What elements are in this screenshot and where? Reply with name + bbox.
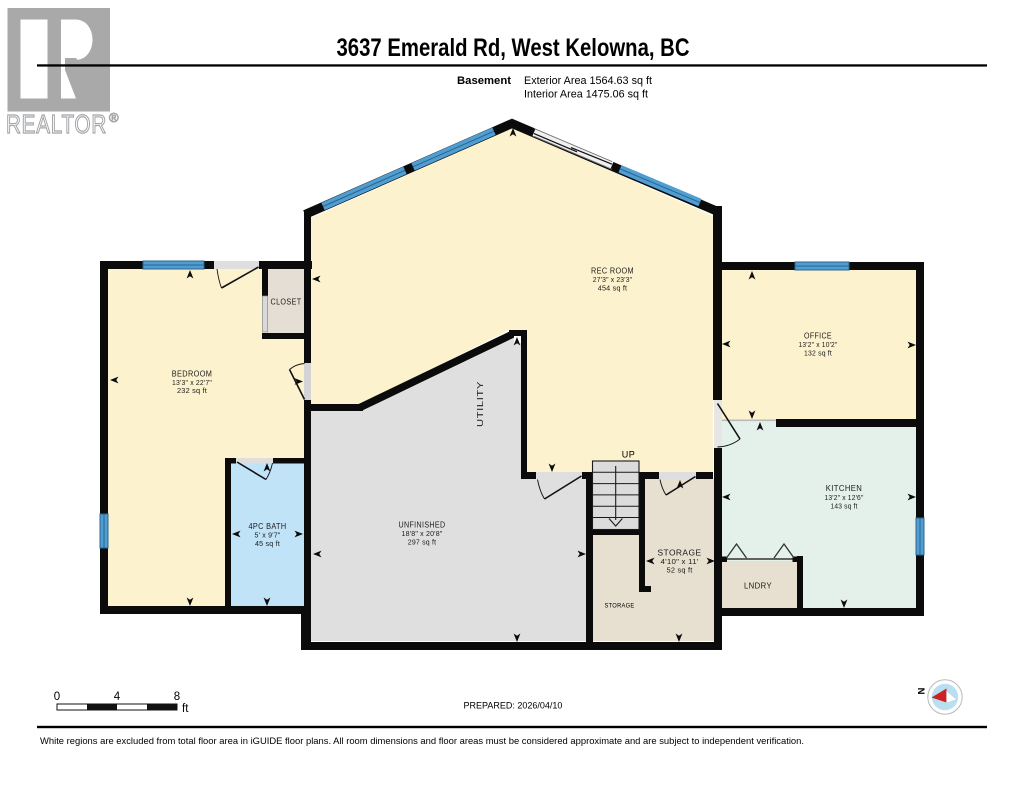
- svg-text:PREPARED: 2026/04/10: PREPARED: 2026/04/10: [464, 701, 563, 711]
- svg-text:Exterior Area 1564.63 sq ft: Exterior Area 1564.63 sq ft: [524, 75, 653, 87]
- svg-text:3637 Emerald Rd, West Kelowna,: 3637 Emerald Rd, West Kelowna, BC: [337, 34, 690, 62]
- svg-text:Interior Area 1475.06 sq ft: Interior Area 1475.06 sq ft: [524, 89, 649, 101]
- svg-text:LNDRY: LNDRY: [744, 582, 772, 591]
- svg-text:ft: ft: [182, 703, 189, 715]
- svg-text:45 sq ft: 45 sq ft: [255, 539, 281, 548]
- svg-text:UTILITY: UTILITY: [476, 381, 485, 427]
- svg-text:4: 4: [114, 691, 121, 703]
- svg-text:STORAGE: STORAGE: [605, 603, 635, 610]
- svg-text:UNFINISHED: UNFINISHED: [399, 521, 446, 530]
- svg-text:N: N: [917, 687, 928, 694]
- svg-text:REALTOR: REALTOR: [6, 109, 107, 139]
- svg-text:CLOSET: CLOSET: [271, 298, 302, 307]
- svg-text:REC ROOM: REC ROOM: [591, 267, 634, 276]
- svg-text:297 sq ft: 297 sq ft: [408, 538, 437, 547]
- svg-text:Basement: Basement: [457, 75, 511, 87]
- svg-text:132 sq ft: 132 sq ft: [804, 349, 833, 358]
- svg-text:8: 8: [174, 691, 180, 703]
- svg-text:0: 0: [54, 691, 60, 703]
- svg-text:OFFICE: OFFICE: [804, 332, 832, 341]
- svg-text:454 sq ft: 454 sq ft: [598, 284, 628, 293]
- svg-text:232 sq ft: 232 sq ft: [177, 386, 208, 395]
- svg-text:UP: UP: [622, 450, 636, 460]
- svg-text:®: ®: [109, 110, 119, 125]
- svg-text:52 sq ft: 52 sq ft: [667, 566, 694, 575]
- svg-text:KITCHEN: KITCHEN: [826, 484, 863, 493]
- svg-text:White regions are excluded fro: White regions are excluded from total fl…: [40, 736, 804, 747]
- svg-text:143 sq ft: 143 sq ft: [831, 502, 859, 511]
